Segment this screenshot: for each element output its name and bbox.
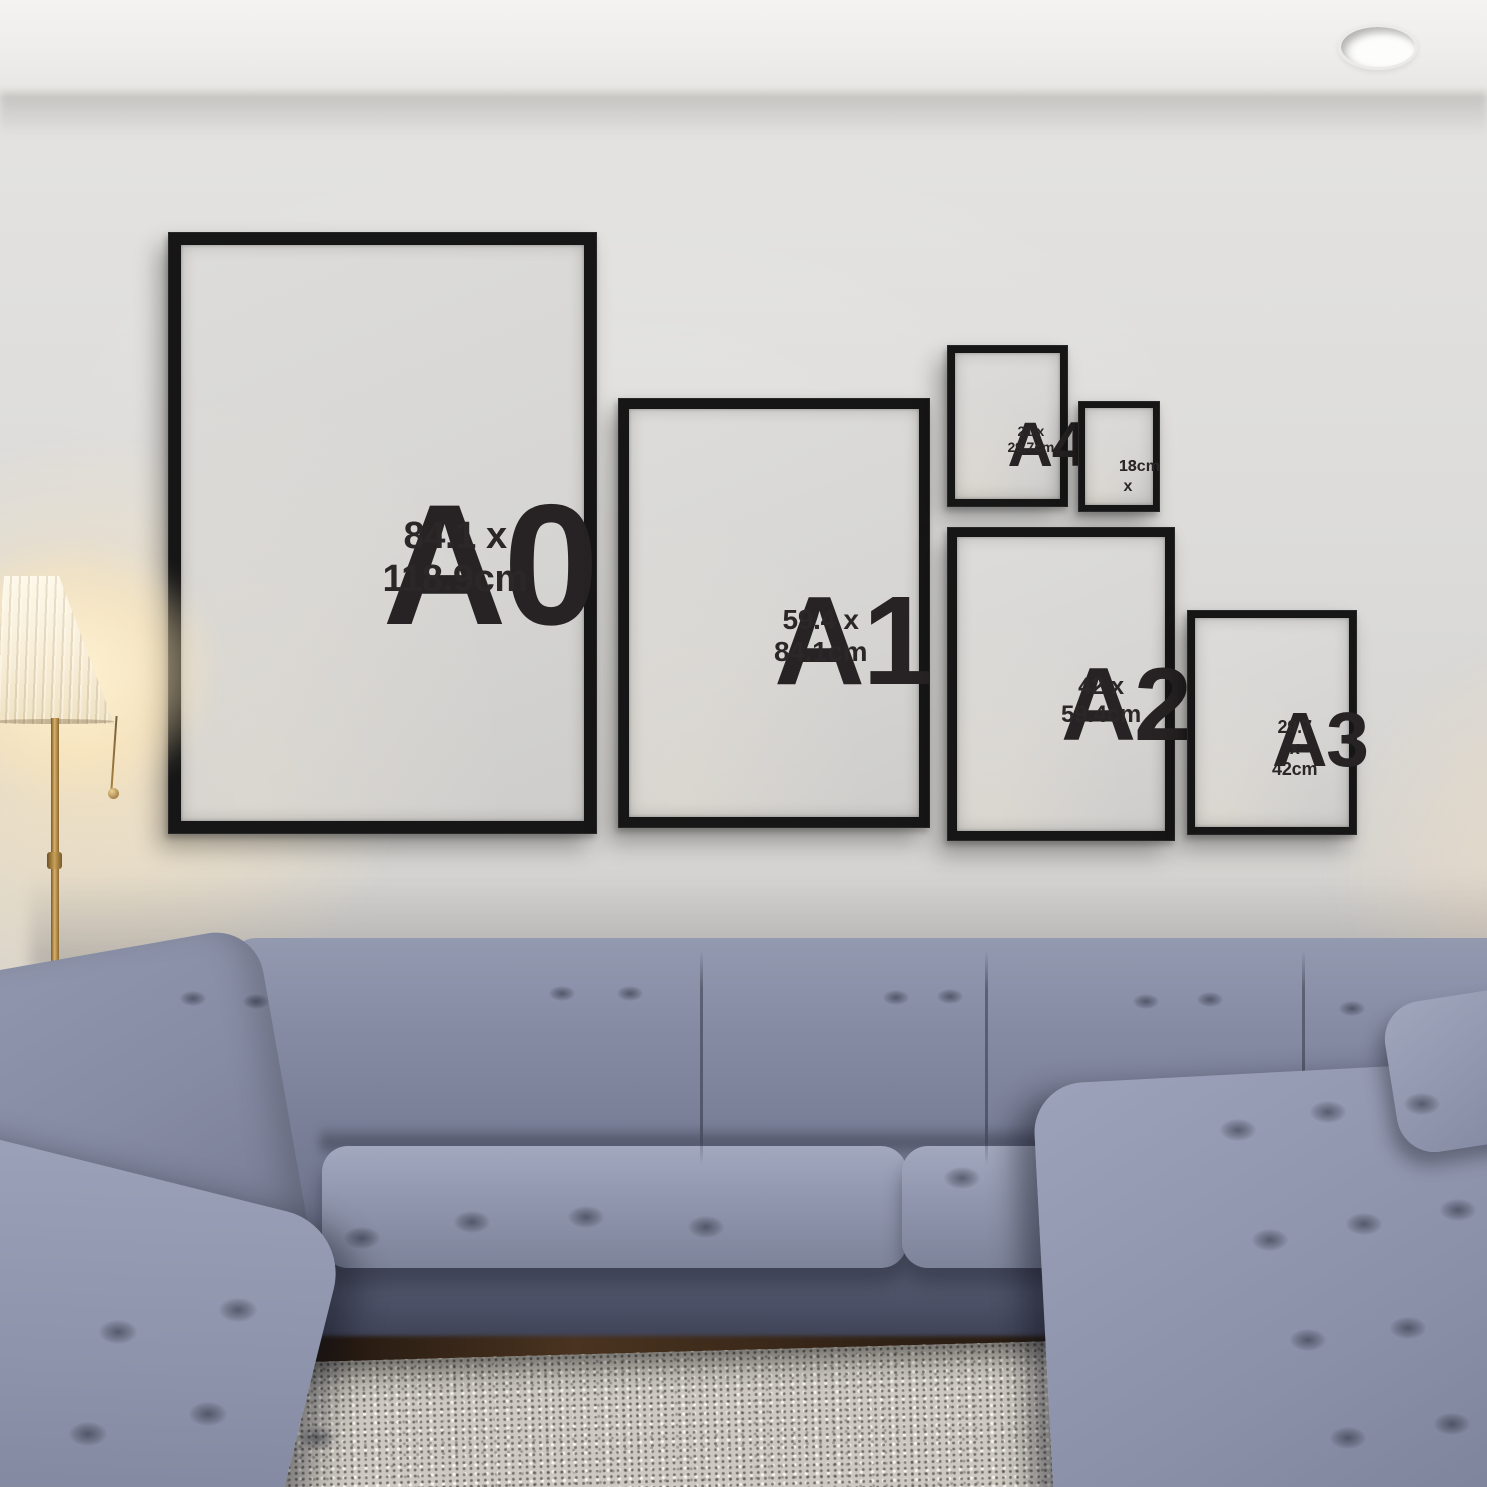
tuft-detail <box>1310 1101 1346 1123</box>
tuft-detail <box>189 1402 227 1426</box>
tuft-detail <box>1346 1213 1382 1235</box>
tuft-detail <box>299 1426 337 1450</box>
tuft-detail <box>1252 1229 1288 1251</box>
tuft-detail <box>69 1422 107 1446</box>
tuft-detail <box>1390 1317 1426 1339</box>
tuft-detail <box>1290 1329 1326 1351</box>
tuft-detail <box>219 1298 257 1322</box>
tuft-detail <box>99 1320 137 1344</box>
tuft-detail <box>1220 1119 1256 1141</box>
tuft-detail <box>1440 1199 1476 1221</box>
chaise-tuft-layer <box>0 0 1487 1487</box>
tuft-detail <box>1404 1093 1440 1115</box>
living-room-size-guide-scene: A0 84.1 x 118.9cm A1 59.4 x 84.1cm A4 21… <box>0 0 1487 1487</box>
tuft-detail <box>1330 1427 1366 1449</box>
tuft-detail <box>1434 1413 1470 1435</box>
